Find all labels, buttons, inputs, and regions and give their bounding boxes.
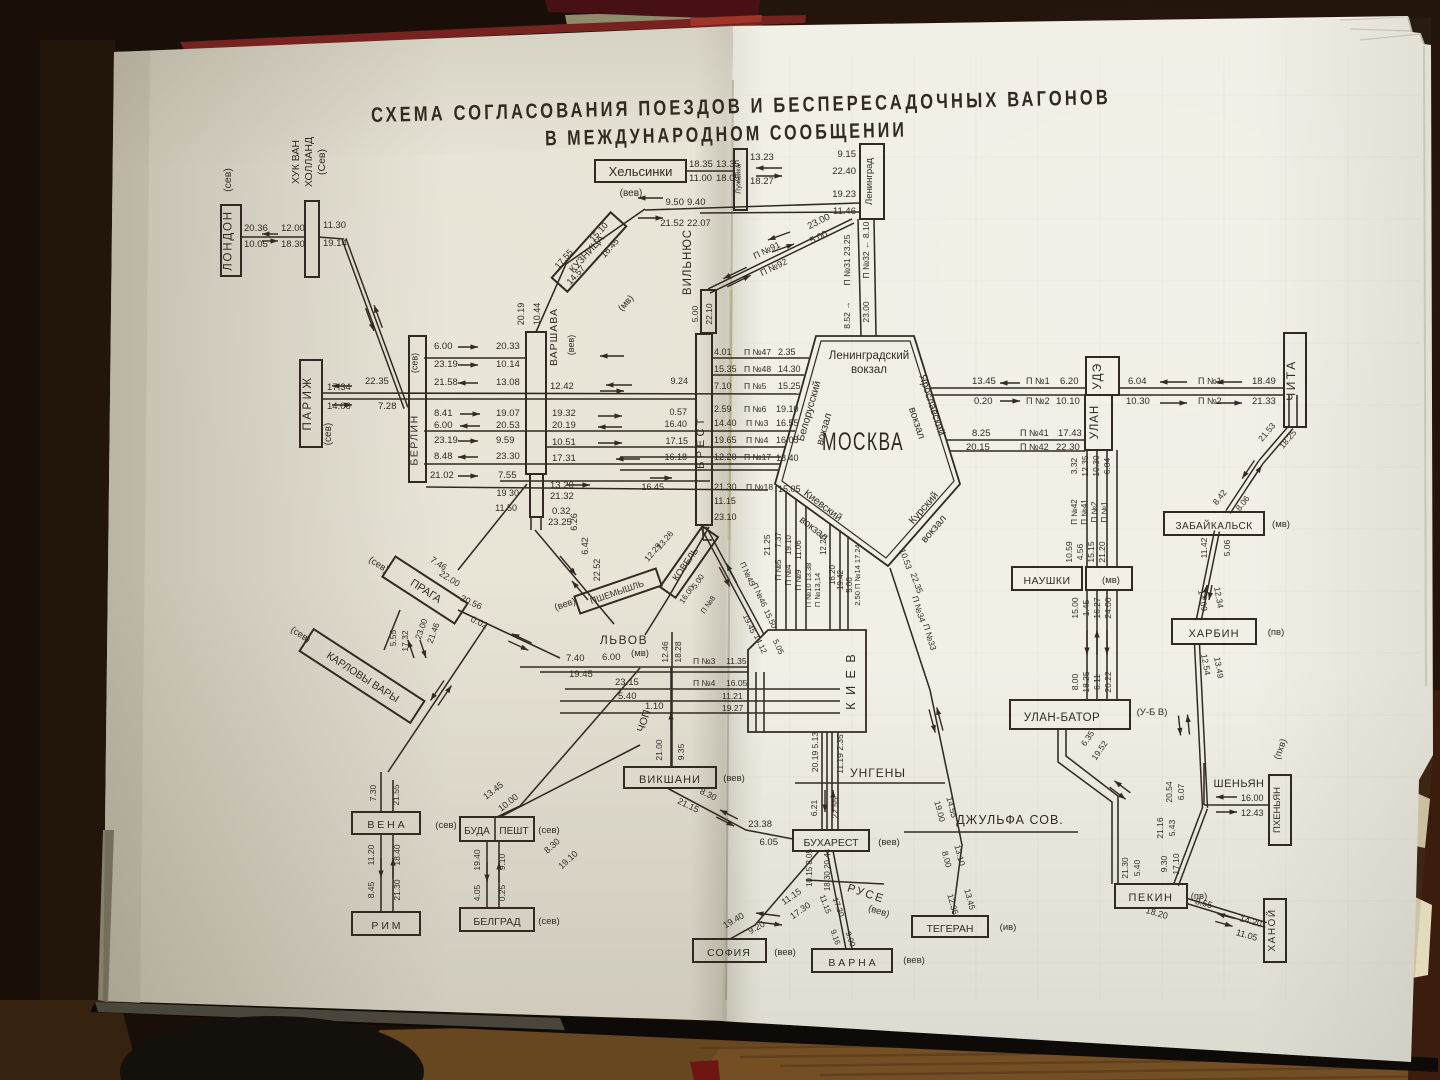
svg-text:11.15: 11.15 [714,496,736,506]
svg-text:П №3: П №3 [746,418,769,428]
svg-text:П №6: П №6 [744,404,767,414]
svg-text:(сев): (сев) [222,168,234,192]
svg-text:21.55: 21.55 [391,784,401,806]
svg-text:9.59: 9.59 [496,435,515,446]
svg-text:6.42: 6.42 [580,537,590,555]
svg-text:ШЕНЬЯН: ШЕНЬЯН [1214,778,1265,790]
svg-text:БЕЛГРАД: БЕЛГРАД [473,916,520,928]
svg-text:19.07: 19.07 [496,408,520,419]
svg-text:Ленинград: Ленинград [864,158,875,205]
svg-text:П №4: П №4 [746,435,769,445]
svg-text:УЛАН: УЛАН [1089,405,1101,439]
svg-text:БУХАРЕСТ: БУХАРЕСТ [804,837,860,849]
svg-text:22.55: 22.55 [830,797,840,819]
svg-text:ХУК ВАН: ХУК ВАН [290,140,302,184]
svg-text:19.32: 19.32 [552,408,576,419]
svg-text:12.43: 12.43 [1241,808,1264,818]
svg-text:15.00: 15.00 [1070,597,1080,619]
svg-text:ПХЕНЬЯН: ПХЕНЬЯН [1272,787,1283,833]
svg-text:18.40: 18.40 [776,453,799,463]
svg-text:П №2: П №2 [1198,396,1222,406]
svg-text:(вев): (вев) [903,955,925,966]
svg-text:(мв): (мв) [631,648,649,659]
svg-text:16.00: 16.00 [1241,793,1264,803]
svg-text:11.46: 11.46 [833,206,856,217]
svg-text:19 30: 19 30 [496,488,519,498]
svg-text:16.05: 16.05 [776,435,799,445]
svg-text:П №1: П №1 [1198,376,1222,386]
svg-text:21.02: 21.02 [430,470,454,481]
svg-text:21.33: 21.33 [1252,396,1276,407]
svg-text:15.35: 15.35 [714,364,737,374]
svg-text:6.21: 6.21 [809,799,819,816]
svg-text:0.20: 0.20 [974,396,993,407]
svg-text:5.43: 5.43 [1167,819,1177,836]
svg-text:1.45: 1.45 [1081,599,1091,616]
svg-text:П №31 23.25: П №31 23.25 [842,234,852,285]
svg-text:11.50: 11.50 [495,503,517,513]
svg-text:11.20: 11.20 [366,844,376,865]
svg-text:14.40: 14.40 [714,418,737,428]
svg-text:УДЭ: УДЭ [1092,362,1104,389]
svg-text:22.40: 22.40 [832,166,856,177]
svg-text:П №2: П №2 [1026,396,1050,406]
svg-text:(сев): (сев) [435,820,456,831]
svg-text:МОСКВА: МОСКВА [822,428,904,456]
svg-text:15.25: 15.25 [778,381,801,391]
svg-text:П №4: П №4 [784,564,793,586]
svg-text:22.35: 22.35 [365,376,389,387]
svg-text:7.28: 7.28 [378,401,397,412]
svg-text:23.38: 23.38 [748,819,772,830]
svg-text:П №48: П №48 [744,364,771,374]
svg-text:20.33: 20.33 [496,341,520,352]
svg-text:ВАРШАВА: ВАРШАВА [548,308,560,366]
svg-text:13.45: 13.45 [972,376,996,387]
svg-text:21.32: 21.32 [550,491,574,502]
svg-text:22.52: 22.52 [592,559,602,582]
svg-text:(сев): (сев) [538,825,559,836]
svg-text:18.49: 18.49 [1252,376,1276,387]
svg-text:21.00: 21.00 [654,739,664,761]
svg-text:(вев): (вев) [774,947,796,958]
svg-text:ЛЬВОВ: ЛЬВОВ [600,633,648,647]
svg-text:ПАРИЖ: ПАРИЖ [302,376,314,431]
svg-text:П №47: П №47 [744,347,771,357]
svg-text:10.14: 10.14 [496,359,520,370]
svg-text:2.35: 2.35 [778,347,796,357]
svg-text:2.50 П №14 17.24: 2.50 П №14 17.24 [853,544,862,605]
svg-text:14.30: 14.30 [778,364,801,374]
svg-text:17.31: 17.31 [552,453,576,464]
svg-text:8.25: 8.25 [972,428,991,439]
svg-text:12.35: 12.35 [1080,455,1090,477]
svg-text:12.42: 12.42 [550,381,574,392]
svg-text:23.00: 23.00 [861,301,871,323]
svg-text:0.57: 0.57 [669,407,687,417]
svg-text:13.08: 13.08 [496,377,520,388]
svg-text:19.23: 19.23 [832,189,856,200]
svg-text:ТЕГЕРАН: ТЕГЕРАН [927,923,974,935]
svg-text:УНГЕНЫ: УНГЕНЫ [850,766,906,780]
svg-text:16.27: 16.27 [1092,597,1102,619]
svg-text:Р И М: Р И М [371,920,400,932]
svg-text:18.27: 18.27 [750,176,774,187]
svg-text:20.36: 20.36 [244,223,268,234]
svg-text:13.23: 13.23 [750,152,774,163]
svg-text:16.45: 16.45 [641,482,664,492]
svg-text:16.40: 16.40 [664,419,687,429]
svg-text:6.05: 6.05 [760,837,779,848]
svg-text:3.32: 3.32 [1069,457,1079,474]
svg-text:6.26: 6.26 [569,513,579,531]
svg-text:11.19 2.35: 11.19 2.35 [835,734,845,774]
svg-text:(вев): (вев) [566,335,576,355]
svg-text:СОФИЯ: СОФИЯ [707,947,751,959]
svg-text:6.07: 6.07 [1176,783,1186,800]
svg-text:БЕРЛИН: БЕРЛИН [409,414,421,465]
svg-text:9.40: 9.40 [687,197,706,208]
svg-text:18.28: 18.28 [673,641,683,663]
svg-text:5.55: 5.55 [388,629,398,646]
svg-text:6.00: 6.00 [602,652,621,663]
svg-text:10.15 8.05: 10.15 8.05 [805,849,814,887]
svg-text:23.19: 23.19 [434,435,458,446]
svg-text:19.27: 19.27 [722,703,744,713]
svg-text:9.30: 9.30 [1159,855,1169,872]
svg-text:БРЕСТ: БРЕСТ [695,415,707,469]
svg-text:6.04: 6.04 [1128,376,1147,387]
svg-text:(сев): (сев) [323,423,334,446]
svg-text:20.15: 20.15 [966,442,990,453]
svg-text:ДЖУЛЬФА СОВ.: ДЖУЛЬФА СОВ. [956,813,1064,827]
svg-text:6.00: 6.00 [434,341,453,352]
svg-text:ЧИТА: ЧИТА [1284,359,1298,401]
svg-text:17.15: 17.15 [665,436,688,446]
svg-text:23.19: 23.19 [434,359,458,370]
svg-text:15.15: 15.15 [1086,541,1096,563]
svg-text:20.19: 20.19 [552,420,576,431]
svg-text:(мв): (мв) [1272,519,1290,530]
svg-text:ХАНОЙ: ХАНОЙ [1265,908,1278,951]
svg-text:Хельсинки: Хельсинки [609,164,673,179]
svg-text:19.42: 19.42 [836,569,845,590]
svg-text:НАУШКИ: НАУШКИ [1023,575,1070,587]
svg-text:10.30: 10.30 [1126,396,1150,407]
svg-text:11.35: 11.35 [726,656,747,666]
svg-text:8.52 →: 8.52 → [842,301,852,328]
svg-text:8.41: 8.41 [434,408,453,419]
svg-text:П №18: П №18 [746,482,773,492]
svg-text:8.45: 8.45 [366,881,376,898]
svg-text:20.54: 20.54 [1164,781,1174,803]
svg-text:6.11: 6.11 [1092,674,1102,690]
svg-text:10.59: 10.59 [1064,541,1074,563]
svg-text:21.20: 21.20 [1097,541,1107,563]
svg-text:19.10: 19.10 [784,534,793,555]
svg-text:15.05: 15.05 [778,484,801,494]
svg-text:7.37: 7.37 [774,532,783,548]
svg-text:17.43: 17.43 [1058,428,1082,439]
svg-text:5.40: 5.40 [1132,859,1142,876]
svg-text:П №41: П №41 [1080,499,1089,525]
svg-text:12.46: 12.46 [660,641,670,663]
svg-text:(У-Б В): (У-Б В) [1137,707,1168,718]
svg-text:ЗАБАЙКАЛЬСК: ЗАБАЙКАЛЬСК [1175,519,1252,532]
svg-text:7.30: 7.30 [368,784,378,801]
svg-text:П №1: П №1 [1100,501,1109,523]
svg-text:0.32: 0.32 [552,506,571,517]
svg-text:7.10: 7.10 [714,381,732,391]
svg-text:ВИЛЬНЮС: ВИЛЬНЮС [682,229,694,295]
svg-text:6.04: 6.04 [1102,457,1112,474]
svg-text:20.22: 20.22 [1103,671,1113,693]
svg-text:18.35: 18.35 [689,159,713,170]
svg-text:8.48: 8.48 [434,451,453,462]
svg-text:БУДА: БУДА [464,826,490,837]
svg-text:18.30: 18.30 [281,239,305,250]
svg-text:4.05: 4.05 [472,884,482,901]
svg-text:10.30: 10.30 [1091,455,1101,477]
svg-text:4.01: 4.01 [714,347,732,357]
svg-text:ХАРБИН: ХАРБИН [1188,628,1239,640]
svg-text:18.25: 18.25 [1081,671,1091,693]
svg-text:21.30: 21.30 [1120,857,1130,879]
svg-text:П №3: П №3 [693,656,716,666]
svg-text:11.00: 11.00 [689,173,712,184]
svg-text:17.10: 17.10 [1171,853,1181,875]
svg-text:21.52: 21.52 [660,218,684,229]
svg-text:16.18: 16.18 [664,452,687,462]
svg-text:23.10: 23.10 [714,512,737,522]
svg-text:8.00: 8.00 [1070,673,1080,690]
svg-text:11.06: 11.06 [794,540,803,560]
svg-text:П №1: П №1 [1026,376,1050,386]
svg-text:12.20: 12.20 [714,452,737,462]
svg-text:УЛАН-БАТОР: УЛАН-БАТОР [1024,712,1100,724]
svg-text:19.45: 19.45 [569,669,593,680]
svg-text:ВИКШАНИ: ВИКШАНИ [639,774,701,786]
svg-text:(мв): (мв) [1102,575,1120,586]
svg-text:5.40: 5.40 [618,691,637,702]
svg-text:10.10: 10.10 [1056,396,1080,407]
svg-text:ПЕШТ: ПЕШТ [499,826,528,837]
svg-text:(сев): (сев) [410,353,420,373]
svg-text:П №5: П №5 [744,381,767,391]
svg-text:12.00: 12.00 [281,223,305,234]
svg-text:П №9: П №9 [794,569,803,591]
svg-text:19.10: 19.10 [776,404,799,414]
svg-text:16.05: 16.05 [726,678,748,688]
svg-text:16.55: 16.55 [776,418,799,428]
svg-text:0.25: 0.25 [497,884,507,901]
svg-text:К И Е В: К И Е В [844,652,858,709]
svg-text:6.20: 6.20 [1060,376,1079,387]
svg-text:(вев): (вев) [723,773,745,784]
svg-text:9.24: 9.24 [670,376,688,386]
svg-text:24.00: 24.00 [1103,597,1113,619]
svg-text:вокзал: вокзал [851,364,887,376]
svg-text:П №41: П №41 [1020,428,1049,438]
svg-text:П №5: П №5 [774,559,783,581]
svg-text:9.50: 9.50 [666,197,685,208]
svg-text:21.30: 21.30 [392,879,402,901]
svg-text:18.30 20.44: 18.30 20.44 [823,848,832,891]
svg-text:23.30: 23.30 [496,451,520,462]
svg-text:11.42: 11.42 [1199,537,1209,558]
svg-text:5.00: 5.00 [690,305,700,322]
svg-text:Ленинградский: Ленинградский [829,350,909,362]
svg-text:20.19: 20.19 [516,303,526,326]
svg-text:(вев): (вев) [878,837,900,848]
svg-text:21.16: 21.16 [1155,817,1165,839]
svg-text:В Е Н А: В Е Н А [367,819,404,831]
svg-text:11.21: 11.21 [722,691,743,701]
svg-text:9.15: 9.15 [838,149,857,160]
svg-text:6.00: 6.00 [434,420,453,431]
svg-text:П №13,14: П №13,14 [813,573,822,607]
svg-text:(Сев): (Сев) [316,149,328,175]
svg-text:П №2: П №2 [1090,501,1099,523]
svg-text:П №32 ← 8.10: П №32 ← 8.10 [861,221,871,278]
svg-text:10.51: 10.51 [552,437,576,448]
svg-text:(ив): (ив) [1000,922,1017,933]
svg-text:22.10: 22.10 [704,303,714,325]
svg-text:21.25: 21.25 [762,534,772,556]
svg-text:В А Р Н А: В А Р Н А [828,957,875,969]
svg-text:П №42: П №42 [1070,499,1079,525]
svg-text:22.30: 22.30 [1056,442,1080,453]
svg-text:11.30: 11.30 [323,220,346,231]
svg-text:П №17: П №17 [744,452,771,462]
svg-text:(сев): (сев) [538,916,559,927]
svg-text:19.40: 19.40 [472,849,482,871]
svg-text:9.35: 9.35 [676,743,686,760]
svg-text:5.06: 5.06 [1222,539,1232,556]
svg-text:21.30: 21.30 [714,482,737,492]
svg-text:21.58: 21.58 [434,377,458,388]
svg-text:20.19 5.13: 20.19 5.13 [810,732,820,772]
svg-text:19.65: 19.65 [714,435,737,445]
svg-text:ПЕКИН: ПЕКИН [1128,892,1173,904]
svg-text:(пв): (пв) [1268,627,1285,638]
svg-text:ХОЛЛАНД: ХОЛЛАНД [303,137,315,187]
svg-text:4.56: 4.56 [1075,543,1085,560]
svg-text:20.53: 20.53 [496,420,520,431]
svg-text:П №10 13.38: П №10 13.38 [804,563,813,608]
svg-text:П №42: П №42 [1020,442,1049,452]
svg-text:7.40: 7.40 [566,653,585,664]
svg-text:12.20: 12.20 [819,534,828,555]
svg-text:7.55: 7.55 [498,470,517,481]
svg-text:Лужайка: Лужайка [734,163,743,194]
svg-text:П №4: П №4 [693,678,716,688]
svg-text:ЛОНДОН: ЛОНДОН [223,210,235,271]
svg-text:22.07: 22.07 [687,218,711,229]
svg-text:2.59: 2.59 [714,404,732,414]
